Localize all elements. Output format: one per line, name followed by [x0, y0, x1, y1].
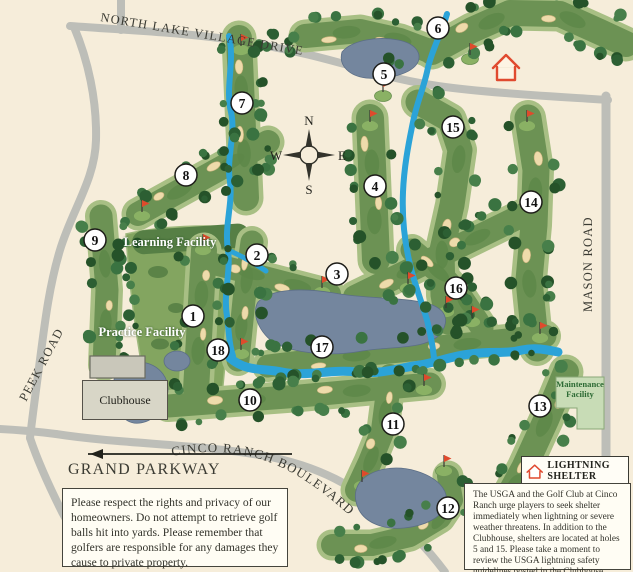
hole-marker-18: 18: [207, 339, 229, 361]
mason-road-label: MASON ROAD: [581, 216, 595, 312]
hole-number-12: 12: [441, 501, 455, 516]
hole-marker-12: 12: [437, 497, 459, 519]
maintenance-facility-label: Maintenance Facility: [556, 380, 604, 400]
hole-number-18: 18: [211, 343, 225, 358]
compass-south-label: S: [305, 182, 312, 197]
hole-number-3: 3: [334, 267, 341, 282]
hole-marker-4: 4: [364, 175, 386, 197]
hole-marker-10: 10: [239, 389, 261, 411]
hole-marker-9: 9: [84, 229, 106, 251]
golf-course-map: NORTH LAKE VILLAGE DRIVE PEEK ROAD MASON…: [0, 0, 633, 572]
hole-marker-15: 15: [442, 116, 464, 138]
lightning-shelter-legend-label: LIGHTNING SHELTER: [547, 460, 624, 482]
practice-facility-label: Practice Facility: [96, 326, 188, 340]
hole-number-4: 4: [372, 179, 379, 194]
lightning-shelter-legend: LIGHTNING SHELTER: [521, 456, 629, 486]
hole-marker-6: 6: [427, 17, 449, 39]
clubhouse-building: [90, 356, 145, 378]
hole-marker-17: 17: [311, 336, 333, 358]
grand-parkway-label: GRAND PARKWAY: [68, 461, 221, 478]
compass-west-label: W: [270, 148, 283, 163]
compass-north-label: N: [304, 113, 314, 128]
hole-marker-8: 8: [175, 164, 197, 186]
hole-marker-5: 5: [373, 63, 395, 85]
homeowners-notice-text: Please respect the rights and privacy of…: [71, 495, 279, 570]
hole-number-2: 2: [254, 248, 261, 263]
hole-number-9: 9: [92, 233, 99, 248]
clubhouse-label: Clubhouse: [82, 380, 168, 420]
hole-number-10: 10: [243, 393, 257, 408]
lightning-shelter-icon: [493, 55, 519, 80]
hole-marker-14: 14: [520, 191, 542, 213]
hole-number-5: 5: [381, 67, 388, 82]
learning-facility-label: Learning Facility: [122, 236, 218, 250]
hole-marker-11: 11: [382, 413, 404, 435]
hole-number-8: 8: [183, 168, 190, 183]
compass-rose-icon: N S W E: [270, 113, 346, 197]
hole-number-17: 17: [315, 340, 329, 355]
hole-number-7: 7: [239, 96, 246, 111]
hole-number-1: 1: [190, 309, 197, 324]
lightning-notice: The USGA and the Golf Club at Cinco Ranc…: [464, 483, 631, 570]
homeowners-notice: Please respect the rights and privacy of…: [62, 488, 288, 567]
lightning-notice-text: The USGA and the Golf Club at Cinco Ranc…: [473, 490, 622, 572]
hole-number-13: 13: [533, 399, 547, 414]
hole-marker-3: 3: [326, 263, 348, 285]
hole-number-11: 11: [387, 417, 400, 432]
lightning-shelter-legend-icon: [526, 459, 543, 483]
hole-marker-16: 16: [445, 277, 467, 299]
hole-marker-2: 2: [246, 244, 268, 266]
hole-number-6: 6: [435, 21, 442, 36]
compass-east-label: E: [338, 148, 346, 163]
hole-number-14: 14: [524, 195, 538, 210]
hole-number-16: 16: [449, 281, 463, 296]
hole-marker-1: 1: [182, 305, 204, 327]
hole-marker-7: 7: [231, 92, 253, 114]
hole-marker-13: 13: [529, 395, 551, 417]
hole-number-15: 15: [446, 120, 460, 135]
